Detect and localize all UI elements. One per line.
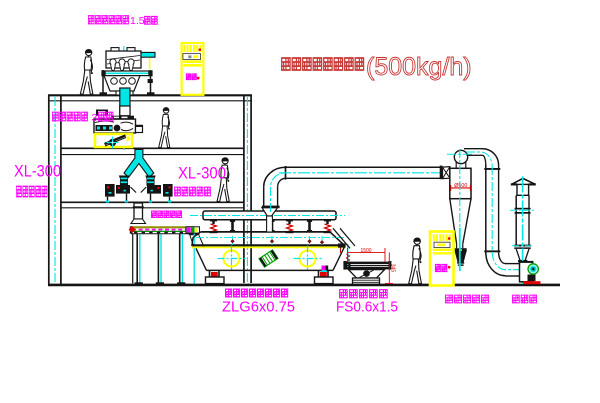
svg-text:1.5: 1.5 — [130, 15, 145, 27]
svg-text:FS0.6x1.5: FS0.6x1.5 — [336, 299, 398, 316]
svg-text:(500kg/h): (500kg/h) — [366, 53, 472, 81]
svg-text:XL-300: XL-300 — [14, 162, 61, 181]
svg-text:3: 3 — [92, 112, 98, 124]
svg-text:ZLG6x0.75: ZLG6x0.75 — [222, 299, 295, 316]
svg-text:345: 345 — [390, 264, 396, 273]
svg-text:XL-300: XL-300 — [178, 164, 226, 183]
svg-text:1500: 1500 — [360, 248, 371, 254]
